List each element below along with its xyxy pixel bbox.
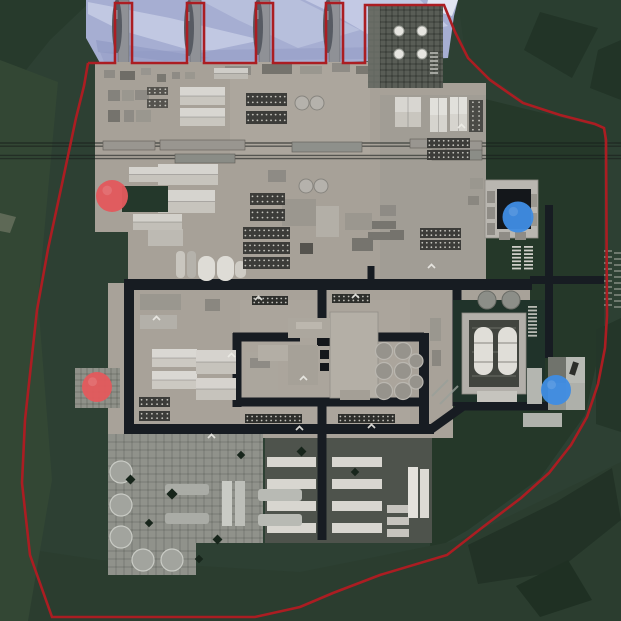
barracks-row — [250, 193, 285, 205]
barracks-row — [263, 265, 265, 267]
objective-marker-blue-1[interactable] — [503, 202, 534, 233]
fuel-tank — [161, 549, 183, 571]
substation-tank — [394, 49, 404, 59]
barracks-row — [154, 101, 156, 103]
barracks-row — [282, 195, 284, 197]
building — [282, 199, 316, 226]
barracks-row — [257, 211, 259, 213]
barracks-row — [270, 420, 272, 422]
barracks-row — [299, 420, 301, 422]
building — [205, 299, 220, 311]
train-car — [175, 154, 235, 163]
barracks-row — [252, 96, 254, 98]
barracks-row — [367, 300, 369, 302]
barracks-row — [259, 244, 261, 246]
building — [470, 178, 483, 189]
warehouse-gable — [180, 108, 225, 117]
barracks-row — [244, 244, 246, 246]
ladder-texture — [524, 246, 533, 248]
barracks-row — [267, 211, 269, 213]
game-minimap[interactable] — [0, 0, 621, 621]
road-dash — [320, 350, 329, 359]
barracks-row — [263, 250, 265, 252]
barracks-row — [338, 414, 395, 423]
barracks-row — [262, 201, 264, 203]
barracks-row — [266, 119, 268, 121]
barracks-row — [247, 119, 249, 121]
ladder-texture — [614, 288, 621, 290]
barracks-row — [444, 230, 446, 232]
building — [135, 90, 149, 100]
barracks-row — [272, 201, 274, 203]
barracks-row — [478, 101, 480, 103]
barracks-row — [280, 416, 282, 418]
barracks-row — [472, 129, 474, 131]
barracks-row — [458, 246, 460, 248]
barracks-row — [427, 150, 470, 160]
barracks-row — [139, 397, 170, 407]
barracks-row — [252, 217, 254, 219]
ladder-texture — [524, 268, 533, 270]
barracks-row — [259, 235, 261, 237]
barracks-row — [294, 420, 296, 422]
building — [235, 481, 245, 526]
barracks-row — [258, 302, 260, 304]
barracks-row — [458, 230, 460, 232]
barracks-row — [267, 217, 269, 219]
building — [122, 90, 134, 101]
ladder-texture — [528, 310, 537, 312]
barracks-row — [272, 195, 274, 197]
barracks-row — [462, 140, 464, 142]
barracks-row — [262, 217, 264, 219]
barracks-row — [377, 420, 379, 422]
building — [108, 90, 120, 101]
barracks-row — [457, 152, 459, 154]
barracks-row — [262, 298, 264, 300]
barracks-row — [245, 414, 302, 423]
barracks-row — [156, 417, 158, 419]
barracks-row — [428, 152, 430, 154]
warehouse-bar — [387, 505, 409, 513]
barracks-row — [146, 403, 148, 405]
storage-tank — [478, 291, 496, 309]
barracks-row — [250, 209, 285, 221]
barracks-row — [282, 265, 284, 267]
barracks-row — [467, 144, 469, 146]
building — [368, 221, 396, 229]
barracks-row — [272, 211, 274, 213]
barracks-row — [462, 152, 464, 154]
substation-tank — [394, 26, 404, 36]
barracks-row — [252, 201, 254, 203]
barracks-row — [333, 300, 335, 302]
barracks-row — [382, 416, 384, 418]
barracks-row — [448, 156, 450, 158]
barracks-row — [433, 144, 435, 146]
white-cylinder — [474, 327, 493, 375]
silo — [187, 251, 196, 278]
barracks-row — [252, 119, 254, 121]
barracks-row — [261, 96, 263, 98]
compound-cell — [487, 223, 495, 235]
barracks-row — [259, 229, 261, 231]
barracks-row — [426, 246, 428, 248]
ladder-texture — [604, 250, 612, 252]
barracks-row — [167, 403, 169, 405]
barracks-row — [254, 265, 256, 267]
barracks-row — [275, 101, 277, 103]
barracks-row — [433, 140, 435, 142]
barracks-row — [282, 201, 284, 203]
ladder-texture — [430, 68, 438, 70]
barracks-row — [279, 101, 281, 103]
barracks-row — [467, 152, 469, 154]
barracks-row — [275, 114, 277, 116]
compound-cell — [487, 191, 495, 203]
storage-tank — [409, 354, 423, 368]
building — [332, 63, 350, 72]
building — [296, 322, 322, 329]
warehouse-gable — [133, 214, 182, 222]
ladder-texture — [614, 252, 621, 254]
ladder-texture — [430, 64, 438, 66]
building — [157, 74, 166, 82]
map-canvas[interactable] — [0, 0, 621, 621]
barracks-row — [472, 106, 474, 108]
ladder-texture — [528, 324, 537, 326]
barracks-row — [139, 411, 170, 421]
ladder-texture — [528, 317, 537, 319]
storage-tank — [376, 343, 393, 360]
barracks-row — [452, 144, 454, 146]
barracks-row — [349, 416, 351, 418]
barracks-row — [478, 124, 480, 126]
barracks-row — [164, 105, 166, 107]
barracks-row — [262, 211, 264, 213]
barracks-row — [354, 420, 356, 422]
objective-marker-blue-2[interactable] — [541, 375, 571, 405]
barracks-row — [358, 416, 360, 418]
ladder-texture — [614, 270, 621, 272]
train-car — [160, 140, 245, 150]
barracks-row — [273, 265, 275, 267]
barracks-row — [440, 230, 442, 232]
barracks-row — [348, 296, 350, 298]
storage-tank — [299, 179, 313, 193]
barracks-row — [472, 120, 474, 122]
barracks-row — [151, 403, 153, 405]
warehouse-bar — [332, 501, 382, 511]
barracks-row — [256, 96, 258, 98]
barracks-row — [435, 230, 437, 232]
barracks-row — [263, 259, 265, 261]
barracks-row — [267, 302, 269, 304]
barracks-row — [161, 403, 163, 405]
building — [316, 206, 339, 237]
barracks-row — [277, 201, 279, 203]
barracks-row — [154, 105, 156, 107]
central-building — [330, 312, 378, 398]
barracks-row — [367, 296, 369, 298]
barracks-row — [275, 119, 277, 121]
barracks-row — [338, 300, 340, 302]
barracks-row — [438, 144, 440, 146]
silo — [217, 256, 234, 281]
ladder-texture — [430, 72, 438, 74]
barracks-row — [257, 217, 259, 219]
barracks-row — [261, 420, 263, 422]
barracks-row — [151, 413, 153, 415]
warehouse-bar — [267, 501, 316, 511]
barracks-row — [428, 140, 430, 142]
barracks-row — [261, 416, 263, 418]
ladder-texture — [614, 282, 621, 284]
barracks-row — [348, 300, 350, 302]
ladder-texture — [614, 258, 621, 260]
barracks-row — [246, 111, 287, 124]
barracks-row — [282, 250, 284, 252]
barracks-row — [243, 227, 290, 239]
silo — [176, 251, 185, 278]
barracks-row — [420, 240, 461, 250]
barracks-row — [261, 101, 263, 103]
barracks-row — [265, 416, 267, 418]
ladder-texture — [430, 56, 438, 58]
barracks-row — [275, 416, 277, 418]
storage-tank — [502, 291, 520, 309]
ladder-texture — [524, 264, 533, 266]
ship — [253, 0, 263, 55]
barracks-row — [263, 244, 265, 246]
barracks-row — [251, 416, 253, 418]
barracks-row — [354, 416, 356, 418]
substation-col — [368, 4, 380, 88]
barracks-row — [332, 294, 370, 303]
barracks-row — [141, 417, 143, 419]
storage-tank — [395, 383, 412, 400]
barracks-row — [161, 399, 163, 401]
barracks-row — [282, 217, 284, 219]
barracks-row — [167, 413, 169, 415]
barracks-row — [254, 244, 256, 246]
storage-tank — [376, 383, 393, 400]
ladder-texture — [512, 250, 521, 252]
barracks-row — [141, 403, 143, 405]
barracks-row — [339, 420, 341, 422]
barracks-row — [268, 229, 270, 231]
barracks-row — [277, 250, 279, 252]
ladder-texture — [528, 328, 537, 330]
warehouse-gable — [152, 371, 197, 380]
building — [345, 213, 372, 230]
barracks-row — [435, 234, 437, 236]
barracks-row — [349, 420, 351, 422]
barracks-row — [478, 111, 480, 113]
barracks-row — [261, 119, 263, 121]
barracks-row — [279, 119, 281, 121]
barracks-row — [421, 242, 423, 244]
building — [136, 110, 151, 122]
barracks-row — [343, 300, 345, 302]
barracks-row — [457, 144, 459, 146]
barracks-row — [254, 250, 256, 252]
barracks-row — [271, 302, 273, 304]
barracks-row — [267, 298, 269, 300]
barracks-row — [458, 234, 460, 236]
building — [140, 315, 177, 329]
storage-tank — [376, 363, 393, 380]
objective-marker-blue-1-highlight — [509, 207, 518, 216]
barracks-row — [438, 140, 440, 142]
ladder-texture — [524, 257, 533, 259]
ladder-texture — [524, 253, 533, 255]
barracks-row — [254, 259, 256, 261]
building — [468, 196, 479, 205]
barracks-row — [449, 234, 451, 236]
barracks-row — [270, 416, 272, 418]
barracks-row — [282, 259, 284, 261]
building — [430, 318, 441, 341]
barracks-row — [273, 235, 275, 237]
barracks-row — [472, 111, 474, 113]
warehouse-gable — [129, 167, 176, 175]
barracks-row — [265, 420, 267, 422]
barracks-row — [338, 296, 340, 298]
building — [268, 170, 286, 182]
barracks-row — [430, 242, 432, 244]
barracks-row — [472, 115, 474, 117]
barracks-row — [287, 250, 289, 252]
barracks-row — [421, 246, 423, 248]
objective-marker-red-1[interactable] — [96, 180, 128, 212]
barracks-row — [387, 416, 389, 418]
barracks-row — [159, 88, 161, 90]
barracks-row — [277, 195, 279, 197]
barracks-row — [262, 302, 264, 304]
barracks-row — [244, 235, 246, 237]
barracks-row — [368, 416, 370, 418]
barracks-row — [246, 93, 287, 106]
barracks-row — [433, 152, 435, 154]
barracks-row — [435, 242, 437, 244]
building — [104, 70, 115, 78]
substation-tank — [417, 26, 427, 36]
barracks-row — [357, 300, 359, 302]
barracks-row — [449, 230, 451, 232]
barracks-row — [254, 235, 256, 237]
ladder-texture — [528, 320, 537, 322]
barracks-row — [262, 195, 264, 197]
barracks-row — [270, 101, 272, 103]
barracks-row — [452, 140, 454, 142]
barracks-row — [284, 416, 286, 418]
barracks-row — [277, 259, 279, 261]
building — [432, 350, 441, 366]
ladder-texture — [512, 246, 521, 248]
ladder-texture — [614, 276, 621, 278]
barracks-row — [343, 296, 345, 298]
barracks-row — [344, 420, 346, 422]
storage-tank — [395, 343, 412, 360]
barracks-row — [430, 230, 432, 232]
fuel-tank — [110, 494, 132, 516]
barracks-row — [159, 105, 161, 107]
barracks-row — [428, 156, 430, 158]
barracks-row — [273, 244, 275, 246]
barracks-row — [263, 235, 265, 237]
barracks-row — [287, 229, 289, 231]
barracks-row — [362, 296, 364, 298]
barracks-row — [249, 265, 251, 267]
ladder-texture — [512, 253, 521, 255]
barracks-row — [247, 96, 249, 98]
storage-tank — [395, 363, 412, 380]
barracks-row — [289, 420, 291, 422]
barracks-row — [428, 144, 430, 146]
barracks-row — [146, 417, 148, 419]
barracks-row — [270, 119, 272, 121]
barracks-row — [252, 195, 254, 197]
barracks-row — [147, 99, 168, 108]
barracks-row — [256, 114, 258, 116]
cylinder-ring — [474, 342, 493, 344]
barracks-row — [284, 96, 286, 98]
barracks-row — [387, 420, 389, 422]
barracks-row — [444, 234, 446, 236]
barracks-row — [167, 417, 169, 419]
warehouse-bar — [267, 479, 316, 489]
barracks-row — [276, 298, 278, 300]
barracks-row — [287, 265, 289, 267]
barracks-row — [156, 413, 158, 415]
barracks-row — [392, 416, 394, 418]
barracks-row — [256, 101, 258, 103]
ship — [323, 0, 333, 53]
barracks-row — [161, 413, 163, 415]
barracks-row — [268, 259, 270, 261]
barracks-row — [462, 144, 464, 146]
compound-cell — [487, 207, 495, 219]
building — [222, 481, 232, 526]
pipe-rack — [165, 513, 209, 524]
storage-tank — [295, 96, 309, 110]
building — [300, 66, 322, 74]
barracks-row — [279, 96, 281, 98]
barracks-row — [272, 217, 274, 219]
building — [148, 229, 183, 246]
warehouse-bar — [332, 479, 382, 489]
objective-marker-red-2[interactable] — [82, 372, 112, 402]
barracks-row — [141, 413, 143, 415]
barracks-row — [146, 413, 148, 415]
barracks-row — [161, 417, 163, 419]
barracks-row — [280, 298, 282, 300]
storage-tank — [409, 375, 423, 389]
cylinder-ring — [474, 361, 493, 363]
barracks-row — [149, 88, 151, 90]
barracks-row — [443, 156, 445, 158]
barracks-row — [452, 152, 454, 154]
barracks-row — [164, 92, 166, 94]
barracks-row — [257, 201, 259, 203]
barracks-row — [285, 302, 287, 304]
barracks-row — [284, 101, 286, 103]
barracks-row — [449, 246, 451, 248]
barracks-row — [285, 298, 287, 300]
building — [141, 68, 151, 75]
barracks-row — [435, 246, 437, 248]
